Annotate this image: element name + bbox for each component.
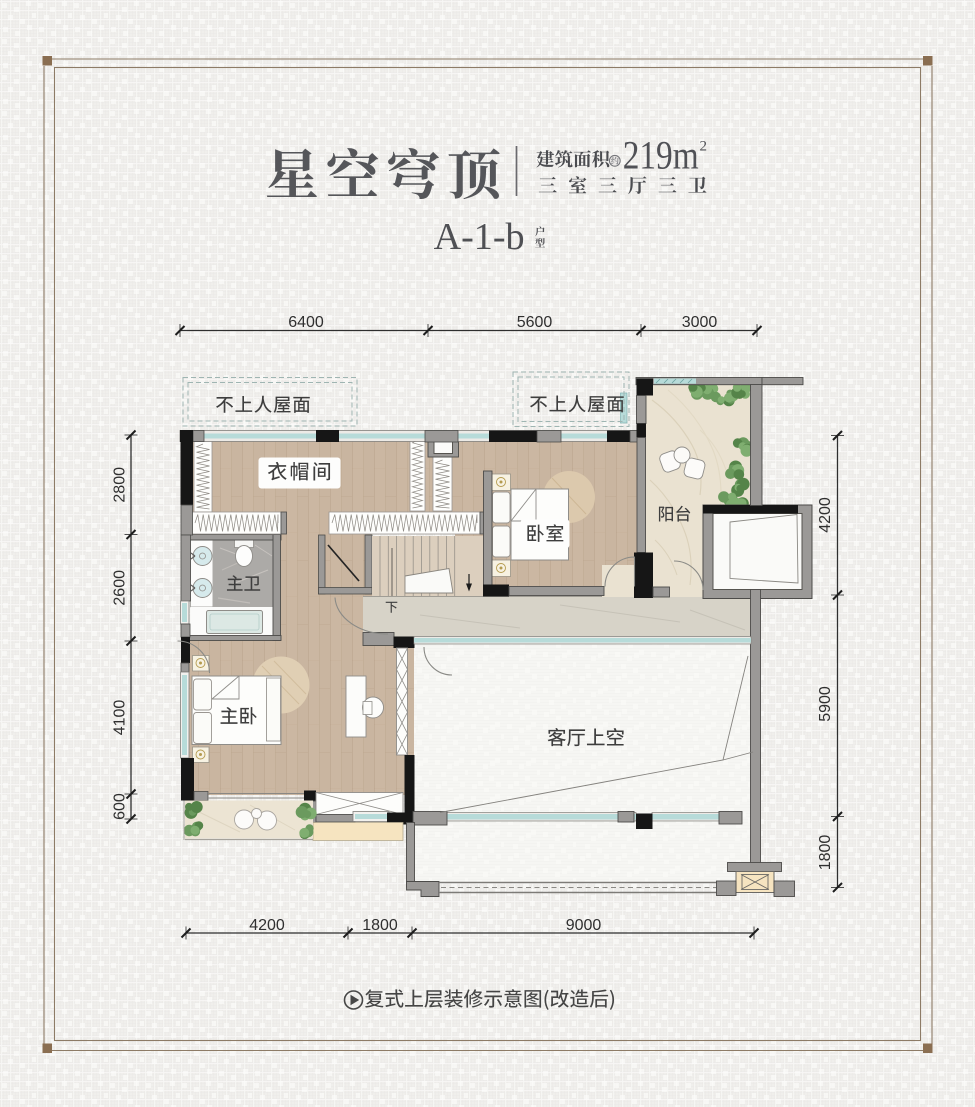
svg-text:2600: 2600: [112, 570, 129, 606]
svg-text:219m: 219m: [623, 132, 699, 177]
svg-text:A-1-b: A-1-b: [434, 216, 525, 258]
svg-text:2: 2: [700, 139, 708, 155]
svg-text:5600: 5600: [517, 314, 553, 331]
svg-text:4100: 4100: [112, 700, 129, 736]
svg-text:4200: 4200: [249, 917, 285, 934]
svg-text:4200: 4200: [817, 497, 834, 533]
svg-text:1800: 1800: [817, 835, 834, 871]
svg-text:3000: 3000: [682, 314, 718, 331]
svg-text:5900: 5900: [817, 686, 834, 722]
svg-text:9000: 9000: [566, 917, 602, 934]
svg-text:6400: 6400: [288, 314, 324, 331]
svg-text:2800: 2800: [112, 467, 129, 503]
svg-text:600: 600: [112, 793, 129, 820]
svg-text:1800: 1800: [362, 917, 398, 934]
